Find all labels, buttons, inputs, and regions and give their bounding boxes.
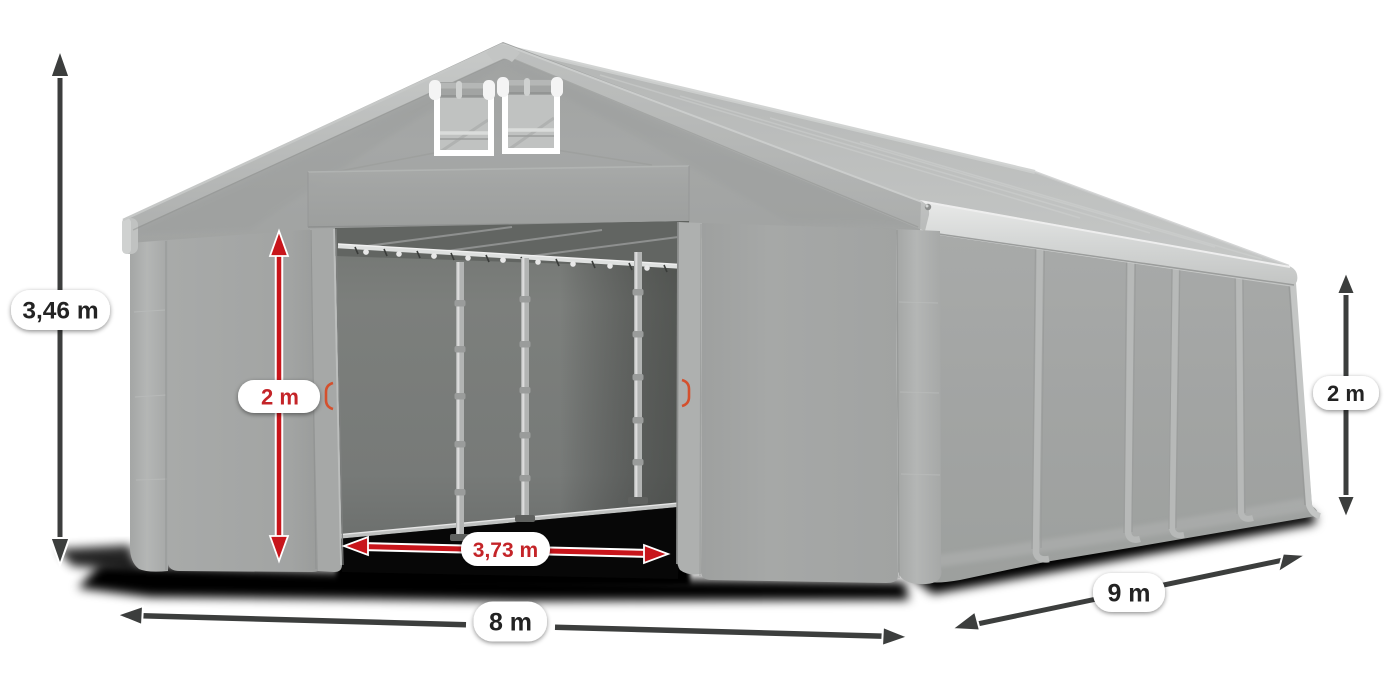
svg-text:3,46 m: 3,46 m — [22, 298, 98, 325]
svg-text:2 m: 2 m — [1327, 381, 1365, 406]
svg-text:9 m: 9 m — [1107, 580, 1150, 608]
svg-text:3,73 m: 3,73 m — [473, 539, 538, 562]
svg-text:8 m: 8 m — [489, 609, 532, 637]
svg-text:2 m: 2 m — [261, 385, 299, 410]
